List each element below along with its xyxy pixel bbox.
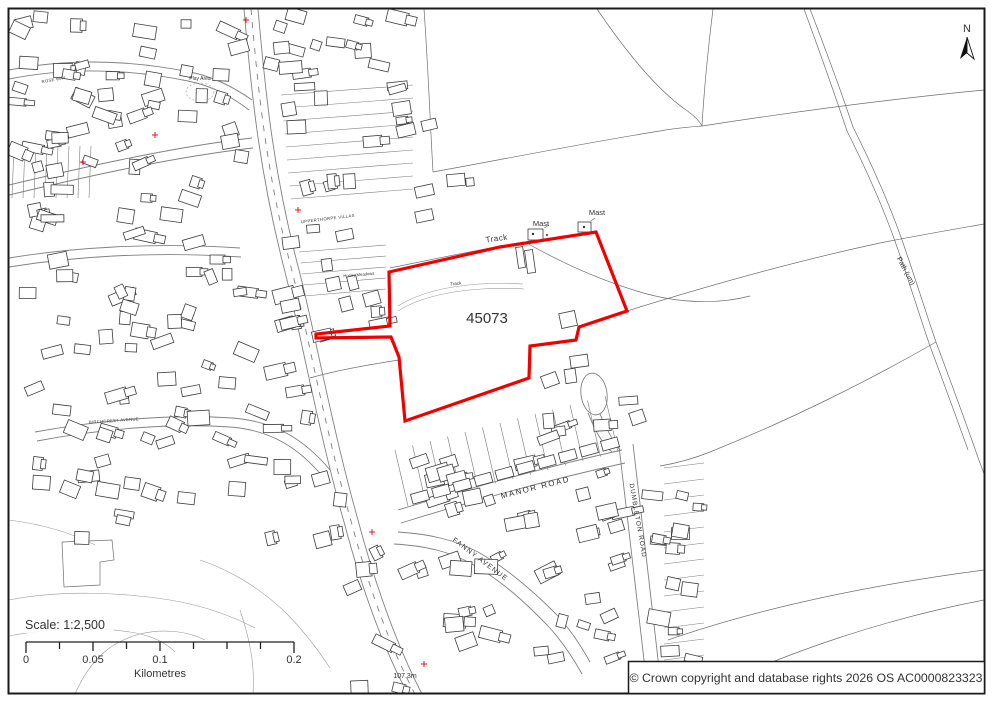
building [450, 560, 472, 576]
building [33, 11, 48, 23]
building [59, 480, 80, 499]
building [676, 490, 689, 500]
building [609, 420, 618, 428]
building [665, 577, 680, 591]
map-label: Honey Meadows [343, 271, 375, 279]
building [32, 475, 50, 490]
building [483, 604, 496, 616]
building [701, 505, 707, 511]
building [41, 215, 64, 222]
building [233, 341, 259, 362]
building [600, 437, 619, 451]
building [326, 37, 345, 48]
building [405, 15, 417, 26]
plot-line [664, 463, 704, 468]
building [540, 371, 559, 388]
scale-bar-line [26, 642, 294, 653]
building [19, 56, 38, 69]
map-label: ROSE WAY [41, 75, 66, 84]
plot-line [287, 150, 413, 160]
building [263, 57, 280, 72]
plot-line [300, 256, 386, 263]
building [335, 228, 354, 242]
building [311, 471, 330, 487]
building [98, 88, 114, 102]
building [256, 290, 267, 298]
building [380, 136, 390, 145]
building [355, 43, 362, 50]
building [146, 327, 156, 338]
building [245, 404, 269, 421]
building [547, 652, 565, 664]
building [537, 430, 560, 445]
building [677, 545, 684, 553]
building [314, 91, 327, 106]
building [273, 20, 287, 33]
building [282, 425, 292, 431]
building [681, 582, 699, 598]
building [222, 269, 232, 281]
attribution-box: © Crown copyright and database rights 20… [629, 662, 985, 694]
building [313, 531, 332, 549]
building [263, 424, 283, 432]
building [51, 185, 73, 195]
building [579, 443, 598, 457]
building [204, 269, 218, 286]
building [133, 23, 157, 39]
building [415, 209, 434, 223]
building [221, 133, 240, 149]
building [464, 617, 476, 627]
building [321, 258, 333, 271]
attribution-text: © Crown copyright and database rights 20… [630, 671, 983, 685]
spot-height-marker [243, 17, 249, 23]
building [125, 343, 137, 352]
building [178, 110, 197, 122]
building [302, 385, 312, 394]
building [156, 436, 175, 450]
building [57, 270, 73, 282]
building [469, 607, 476, 615]
building [228, 39, 250, 56]
map-label: BIRCHCREST AVENUE [89, 416, 139, 424]
plot-line [664, 559, 704, 564]
building [32, 161, 44, 173]
building [308, 68, 318, 75]
building [181, 20, 191, 28]
building [73, 72, 81, 80]
building [369, 563, 378, 574]
building [66, 122, 89, 138]
building [233, 287, 247, 296]
building [629, 409, 647, 426]
building [285, 476, 301, 484]
map-border [9, 9, 985, 694]
building [219, 377, 236, 390]
building [150, 195, 156, 201]
building [570, 354, 589, 368]
building [524, 512, 540, 528]
building [41, 345, 63, 360]
north-arrow: N [960, 23, 974, 59]
plot-line [395, 450, 408, 506]
building [178, 189, 201, 207]
building [177, 492, 195, 505]
building [157, 372, 176, 386]
map-label: Mast [589, 208, 606, 217]
building [362, 290, 381, 307]
building [12, 81, 28, 94]
map-canvas: TrackTrackMastMastMANOR ROADFANNY AVENUE… [0, 0, 993, 702]
building [409, 453, 429, 468]
building [95, 481, 120, 499]
building [608, 519, 625, 534]
building [343, 579, 362, 595]
building [642, 490, 663, 501]
building [343, 174, 356, 189]
building [92, 106, 117, 124]
building [554, 566, 562, 574]
building [94, 454, 110, 468]
building [24, 100, 35, 106]
map-label: 107.3m [393, 673, 417, 680]
building [139, 46, 156, 59]
plot-line [664, 511, 704, 516]
plot-line [664, 639, 704, 644]
plot-line [299, 245, 386, 252]
building [181, 385, 201, 397]
mast-symbol [578, 218, 595, 232]
spot-height-marker [152, 132, 158, 138]
building [677, 629, 682, 634]
plot-line [288, 163, 413, 173]
building [671, 523, 689, 539]
building [273, 41, 290, 54]
building [543, 413, 555, 429]
scale-tick-3: 0.2 [286, 654, 301, 666]
building [282, 236, 300, 250]
building [57, 316, 70, 326]
building [168, 314, 182, 328]
building [24, 381, 44, 397]
building [283, 362, 296, 374]
building [80, 21, 86, 30]
building [585, 592, 601, 604]
building [196, 89, 207, 103]
building [339, 296, 354, 312]
plot-line [89, 146, 91, 198]
building [333, 492, 347, 507]
building [619, 396, 638, 405]
plot-line [664, 607, 704, 612]
building [307, 224, 320, 233]
spot-height-marker [421, 661, 427, 667]
plot-line [286, 137, 413, 147]
building [52, 132, 69, 143]
north-arrow-icon [960, 37, 967, 59]
building [182, 235, 205, 251]
building [160, 207, 183, 223]
building [291, 285, 304, 298]
map-label: Track [485, 232, 509, 244]
map-label: Play Area [189, 76, 211, 82]
building [19, 287, 36, 298]
building [368, 58, 390, 71]
building [414, 184, 434, 198]
scale-unit-label: Kilometres [134, 668, 186, 680]
building [462, 488, 483, 506]
buildings [5, 7, 707, 700]
building [47, 251, 69, 269]
building [495, 466, 514, 480]
scale-tick-2: 0.1 [152, 654, 167, 666]
building [124, 477, 141, 491]
plot-line [664, 479, 704, 484]
plot-line [78, 146, 80, 198]
building [234, 150, 249, 164]
building [63, 419, 88, 440]
spot-height-marker [369, 529, 375, 535]
building [392, 100, 412, 116]
building [180, 319, 196, 331]
scale-tick-1: 0.05 [82, 654, 103, 666]
building [74, 344, 91, 355]
building [297, 315, 308, 325]
building [421, 118, 438, 131]
building [600, 608, 618, 624]
spot-height-marker [295, 207, 301, 213]
building [213, 69, 229, 82]
building [455, 632, 478, 652]
building [181, 304, 197, 321]
building [379, 307, 385, 315]
building [406, 117, 413, 123]
building [310, 39, 322, 51]
north-label: N [963, 23, 971, 35]
building [607, 633, 616, 641]
building [309, 413, 316, 423]
building [187, 410, 210, 426]
building [334, 176, 340, 187]
building [663, 537, 671, 544]
building [281, 102, 297, 117]
map-sheet: TrackTrackMastMastMANOR ROADFANNY AVENUE… [0, 0, 993, 702]
building [604, 468, 610, 474]
map-label: Mast [533, 219, 550, 228]
plot-line [303, 278, 386, 285]
building [444, 616, 464, 632]
scale-text: Scale: 1:2,500 [25, 618, 105, 632]
building [576, 487, 591, 502]
building [74, 531, 89, 544]
building [72, 88, 92, 105]
building [365, 19, 373, 26]
building [144, 71, 161, 87]
building [534, 646, 549, 656]
building [474, 472, 493, 486]
scale-tick-0: 0 [23, 654, 29, 666]
building [46, 163, 64, 179]
building [274, 460, 291, 475]
scale-bar: Scale: 1:2,500 0 0.05 0.1 0.2 Kilometres [22, 616, 302, 680]
building [576, 524, 599, 542]
building [52, 404, 71, 416]
building [390, 644, 403, 655]
north-arrow-icon [967, 37, 974, 59]
building [82, 155, 98, 168]
building [279, 61, 303, 75]
map-label: MANOR ROAD [500, 475, 571, 501]
building [117, 208, 135, 224]
building [40, 459, 46, 469]
site-ref-label: 45073 [466, 310, 508, 327]
site-features [390, 173, 750, 383]
building [141, 432, 156, 445]
field-boundaries [62, 9, 984, 694]
building [294, 82, 315, 90]
building [99, 329, 113, 344]
building [577, 620, 591, 631]
building [244, 455, 267, 465]
building [325, 276, 341, 291]
building [661, 645, 680, 657]
building [228, 481, 246, 496]
building [287, 120, 306, 134]
map-label: UPPERTHORPE VILLAS [301, 213, 356, 225]
building [223, 256, 231, 262]
building [117, 73, 124, 79]
